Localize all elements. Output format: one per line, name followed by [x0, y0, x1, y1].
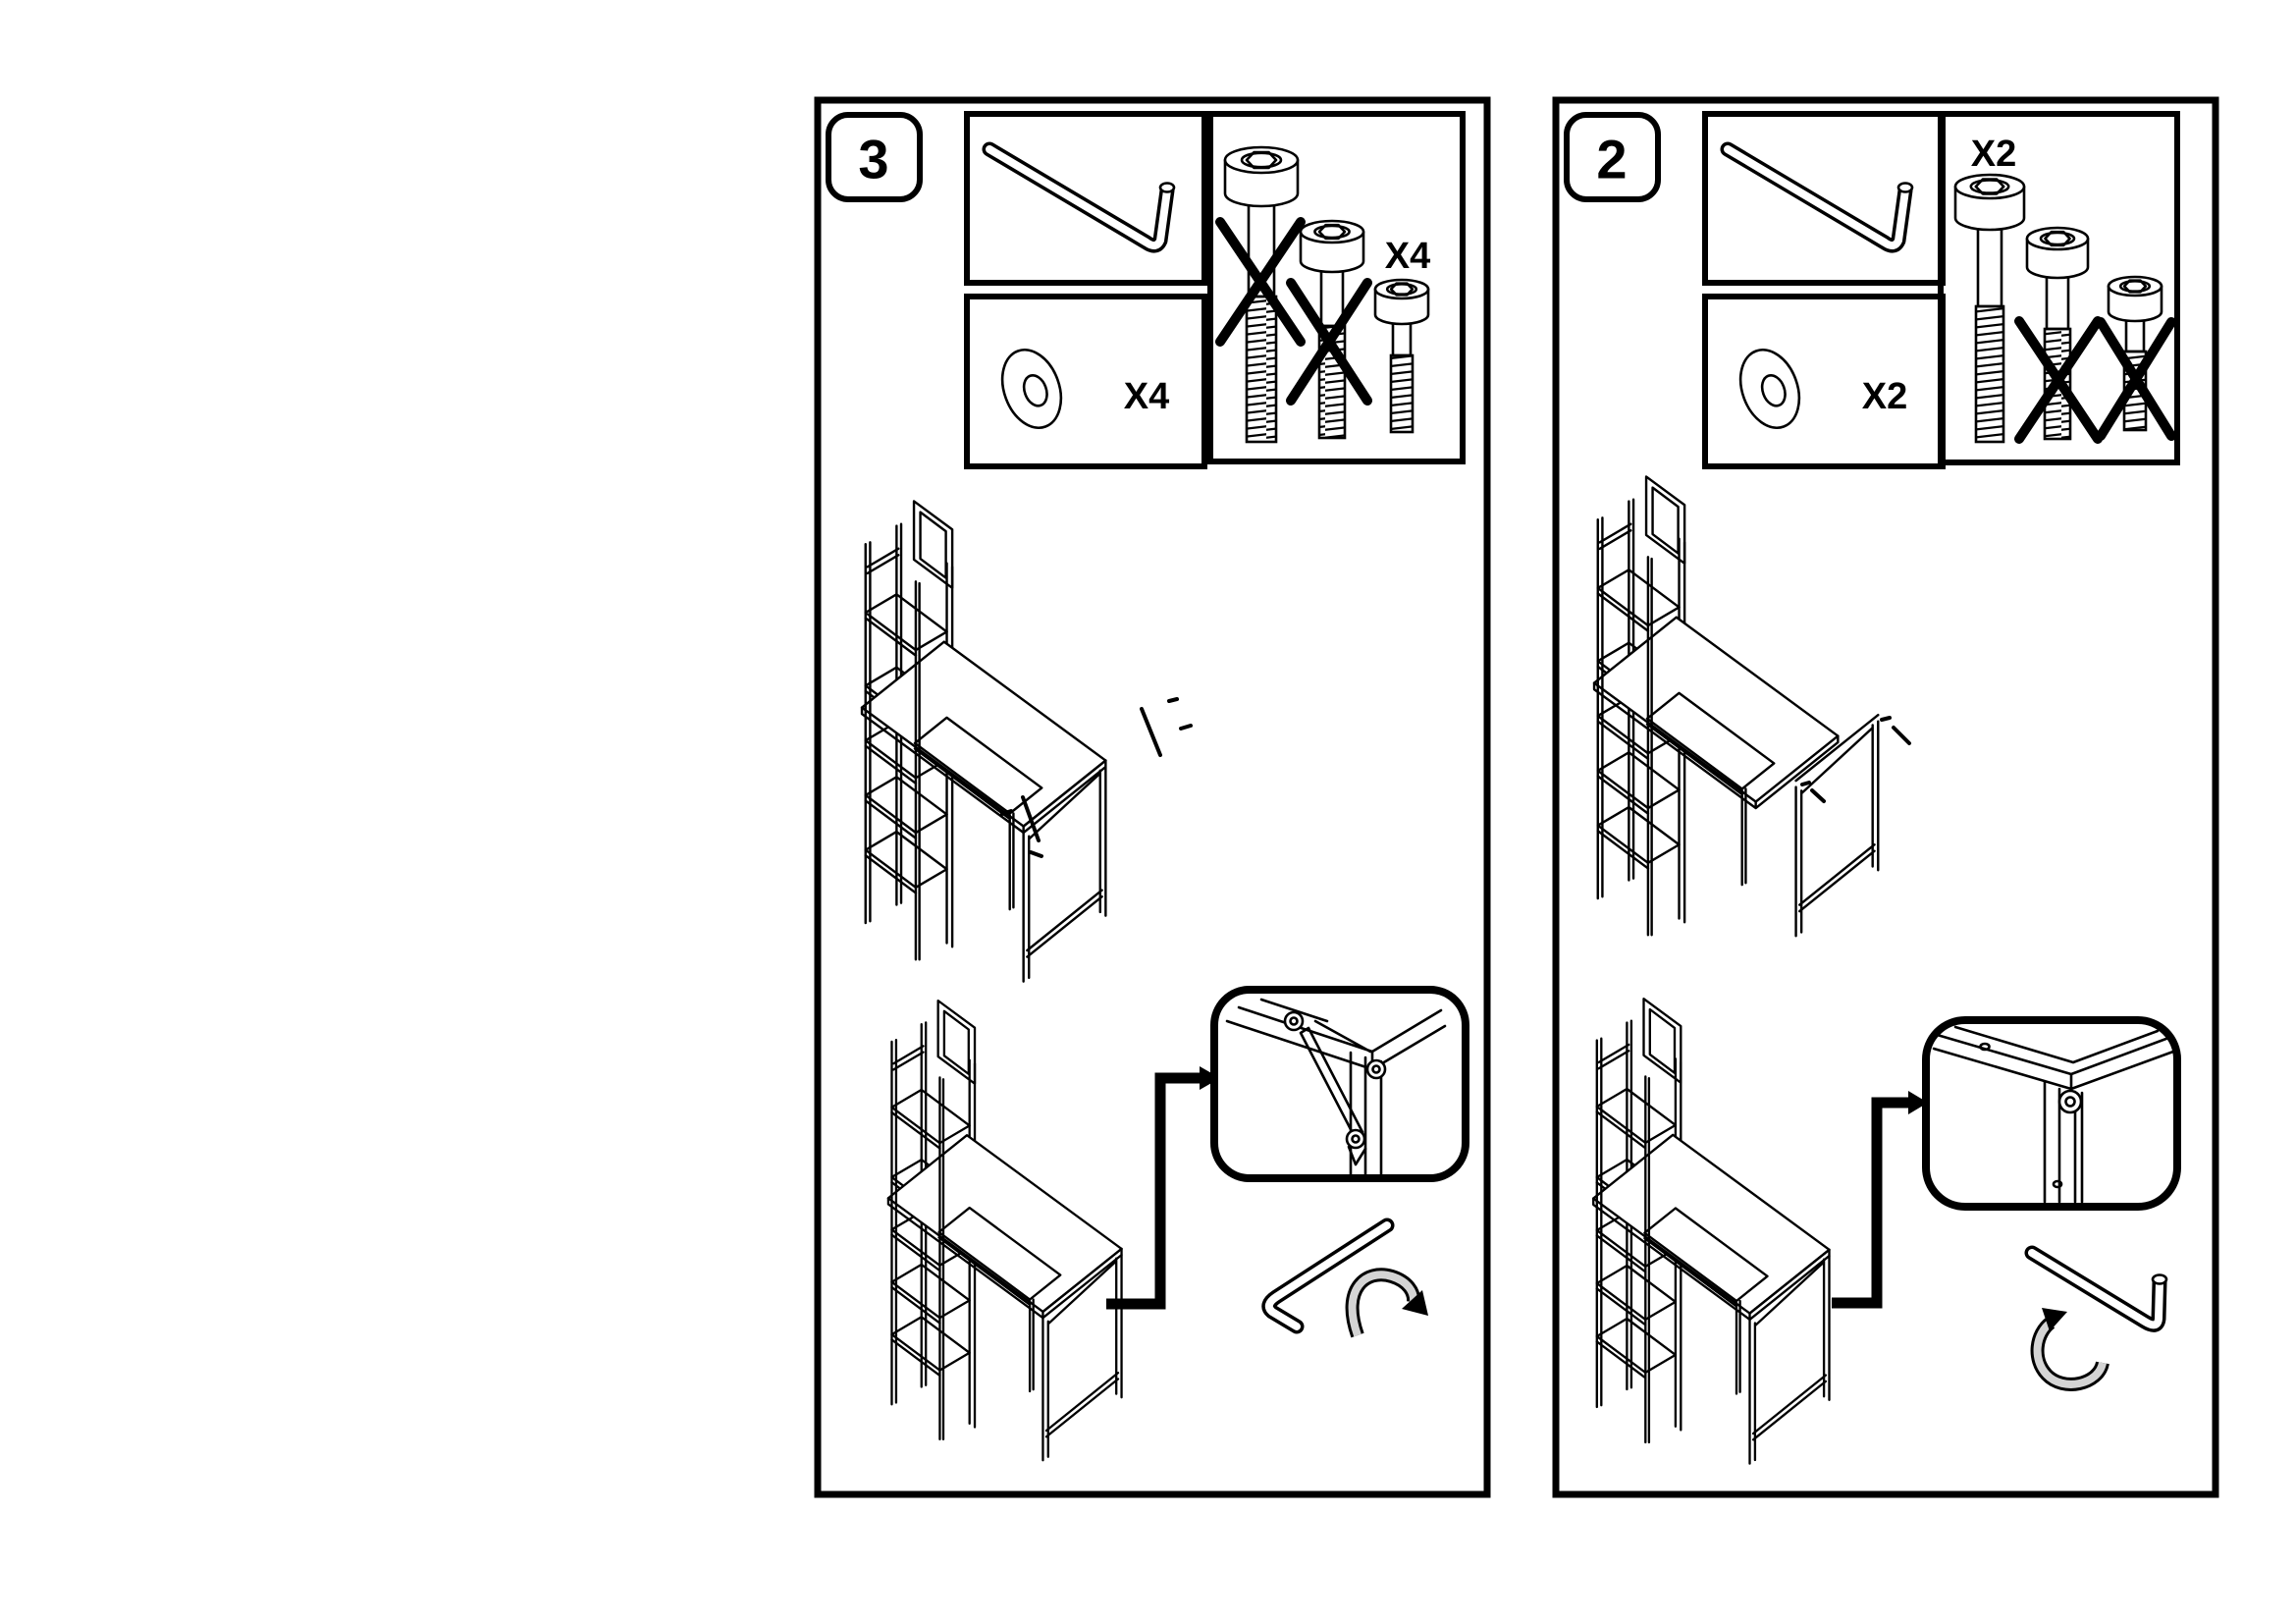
- screw-head: [1347, 1130, 1364, 1148]
- instruction-drawing: 3 X4: [0, 0, 2296, 1624]
- desk-with-shelf-tower: [888, 1001, 1122, 1460]
- allen-key-icon: [1728, 149, 1912, 245]
- screw-head: [1367, 1060, 1385, 1078]
- washer-count-label: X2: [1862, 376, 1907, 417]
- washer-box: X2: [1705, 297, 1943, 466]
- step-number: 3: [858, 129, 888, 190]
- bolt-box: X4: [1210, 114, 1463, 461]
- elbow-arrow: [1106, 1066, 1220, 1304]
- diagram-position-side-frame: [1594, 476, 1909, 936]
- bolt-long-icon: [1955, 175, 2024, 442]
- desk-with-shelf-tower: [1593, 999, 1829, 1463]
- instruction-panel-step-3: 3 X4: [818, 100, 1487, 1494]
- instruction-sheet: 3 X4: [0, 0, 2296, 1624]
- detail-callout-corner-brace: [1214, 990, 1466, 1178]
- allen-key-icon: [989, 149, 1174, 245]
- bolt-insert-indicator: [1882, 718, 1909, 743]
- step-number: 2: [1596, 129, 1627, 190]
- desk-with-shelf-tower: [862, 501, 1105, 981]
- rotate-clockwise-arrow: [1353, 1274, 1428, 1335]
- diagram-attach-side-frame: [862, 501, 1191, 981]
- instruction-panel-step-2: 2 X2 X2: [1556, 100, 2216, 1494]
- bolt-short-icon: [1375, 280, 1428, 432]
- bolt-count-label: X4: [1385, 236, 1430, 277]
- detail-callout-corner-bolt: [1926, 1020, 2177, 1207]
- screw-head: [1285, 1012, 1303, 1030]
- washer-icon: [992, 342, 1072, 436]
- washer-icon: [1731, 342, 1810, 436]
- washer-count-label: X4: [1124, 376, 1169, 417]
- diagram-tighten-corner-brace: [888, 990, 1466, 1460]
- bolt-box: X2: [1941, 114, 2177, 462]
- bolt-insert-indicator: [1142, 699, 1191, 755]
- bolt-insert-indicator: [1802, 783, 1824, 801]
- elbow-arrow: [1832, 1091, 1928, 1303]
- bolt-long-icon: [1225, 147, 1298, 442]
- step-badge: 3: [828, 115, 920, 199]
- tool-box: [967, 114, 1204, 283]
- bolt-count-label: X2: [1971, 134, 2016, 175]
- rotate-counterclockwise-arrow: [2038, 1308, 2103, 1384]
- screw-head: [2059, 1091, 2081, 1112]
- tool-box: [1705, 114, 1943, 283]
- washer-box: X4: [967, 297, 1204, 466]
- desk-with-shelf-tower: [1594, 476, 1878, 936]
- step-badge: 2: [1567, 115, 1658, 199]
- diagram-tighten-corner-bolt: [1593, 999, 2177, 1463]
